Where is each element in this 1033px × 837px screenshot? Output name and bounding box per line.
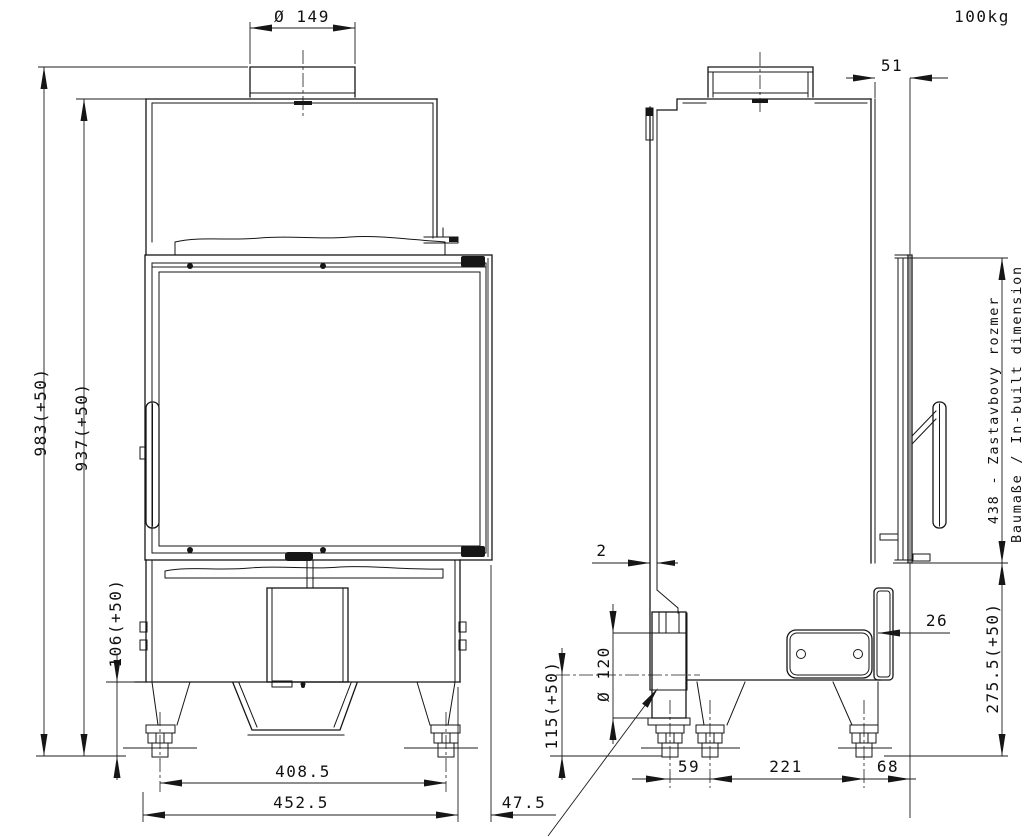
door-hinge-top xyxy=(461,256,485,267)
front-latch-lever xyxy=(285,552,313,588)
side-door-handle xyxy=(912,402,946,528)
overall-height-label: 983(+50) xyxy=(31,367,50,456)
door-hinge-bottom xyxy=(461,546,485,557)
weight-label: 100kg xyxy=(954,7,1010,26)
rear-panel-thickness-label: 26 xyxy=(926,611,948,630)
front-flue-collar xyxy=(250,50,355,116)
door-overhang-label: 47.5 xyxy=(502,793,547,812)
plinth-height-label: 106(+50) xyxy=(106,578,125,667)
flue-diameter-label: Ø 149 xyxy=(274,7,330,26)
foot-spacing-middle-label: 221 xyxy=(769,757,802,776)
plinth-section-height-label: 275.5(+50) xyxy=(983,602,1002,713)
side-front-wall-and-door xyxy=(871,99,930,563)
air-intake-leader-line xyxy=(548,688,658,836)
front-view xyxy=(123,50,492,792)
dim-body-width: 452.5 xyxy=(143,687,458,822)
front-door-frame xyxy=(145,255,492,560)
side-rear-wall xyxy=(646,107,678,690)
dim-foot-spacings: 59 221 68 xyxy=(632,757,916,783)
front-air-duct-housing xyxy=(267,588,348,682)
dim-door-depth: 51 xyxy=(846,56,948,98)
technical-drawing-sheet: Ø 149 983(+50) 937(+50) 106(+50) xyxy=(0,0,1033,837)
air-intake-axis-height-label: 115(+50) xyxy=(542,660,561,749)
front-door-handle xyxy=(140,402,159,528)
dim-rear-panel-thickness: 26 xyxy=(878,611,950,637)
dim-foot-centers: 408.5 xyxy=(160,762,446,787)
dim-rear-wall-gap: 2 xyxy=(592,541,678,567)
dim-air-intake-diameter: Ø 120 xyxy=(594,604,652,744)
body-height-label: 937(+50) xyxy=(72,382,91,471)
dim-overall-height: 983(+50) xyxy=(31,67,248,756)
dim-plinth-height: 106(+50) xyxy=(106,578,150,780)
side-air-intake-duct xyxy=(556,612,700,725)
rear-foot-offset-label: 68 xyxy=(877,757,899,776)
front-lower-panel xyxy=(140,560,466,687)
junction-cover-plate xyxy=(787,630,872,678)
front-upper-body xyxy=(146,99,458,255)
side-lower-rear-section xyxy=(787,588,893,680)
front-dimensions: Ø 149 983(+50) 937(+50) 106(+50) xyxy=(31,7,658,836)
side-dimensions: 100kg 51 2 Ø 120 xyxy=(542,7,1025,783)
air-intake-diameter-label: Ø 120 xyxy=(594,646,613,702)
rear-wall-gap-label: 2 xyxy=(596,541,607,560)
dim-plinth-section-height: 275.5(+50) xyxy=(884,563,1008,756)
body-width-label: 452.5 xyxy=(273,793,329,812)
fireplace-insert-drawing: Ø 149 983(+50) 937(+50) 106(+50) xyxy=(0,0,1033,837)
foot-spacing-front-label: 59 xyxy=(678,757,700,776)
inbuilt-height-label-de-en: Baumaße / In-built dimension xyxy=(1009,265,1025,543)
inbuilt-height-label-sk: 438 - Zastavbovy rozmer xyxy=(986,296,1002,524)
dim-flue-diameter: Ø 149 xyxy=(250,7,355,64)
side-flue-collar xyxy=(708,52,813,112)
foot-centers-label: 408.5 xyxy=(275,762,331,781)
dim-inbuilt-height: 438 - Zastavbovy rozmer Baumaße / In-bui… xyxy=(893,258,1025,563)
side-view xyxy=(556,52,946,818)
door-depth-label: 51 xyxy=(881,56,903,75)
